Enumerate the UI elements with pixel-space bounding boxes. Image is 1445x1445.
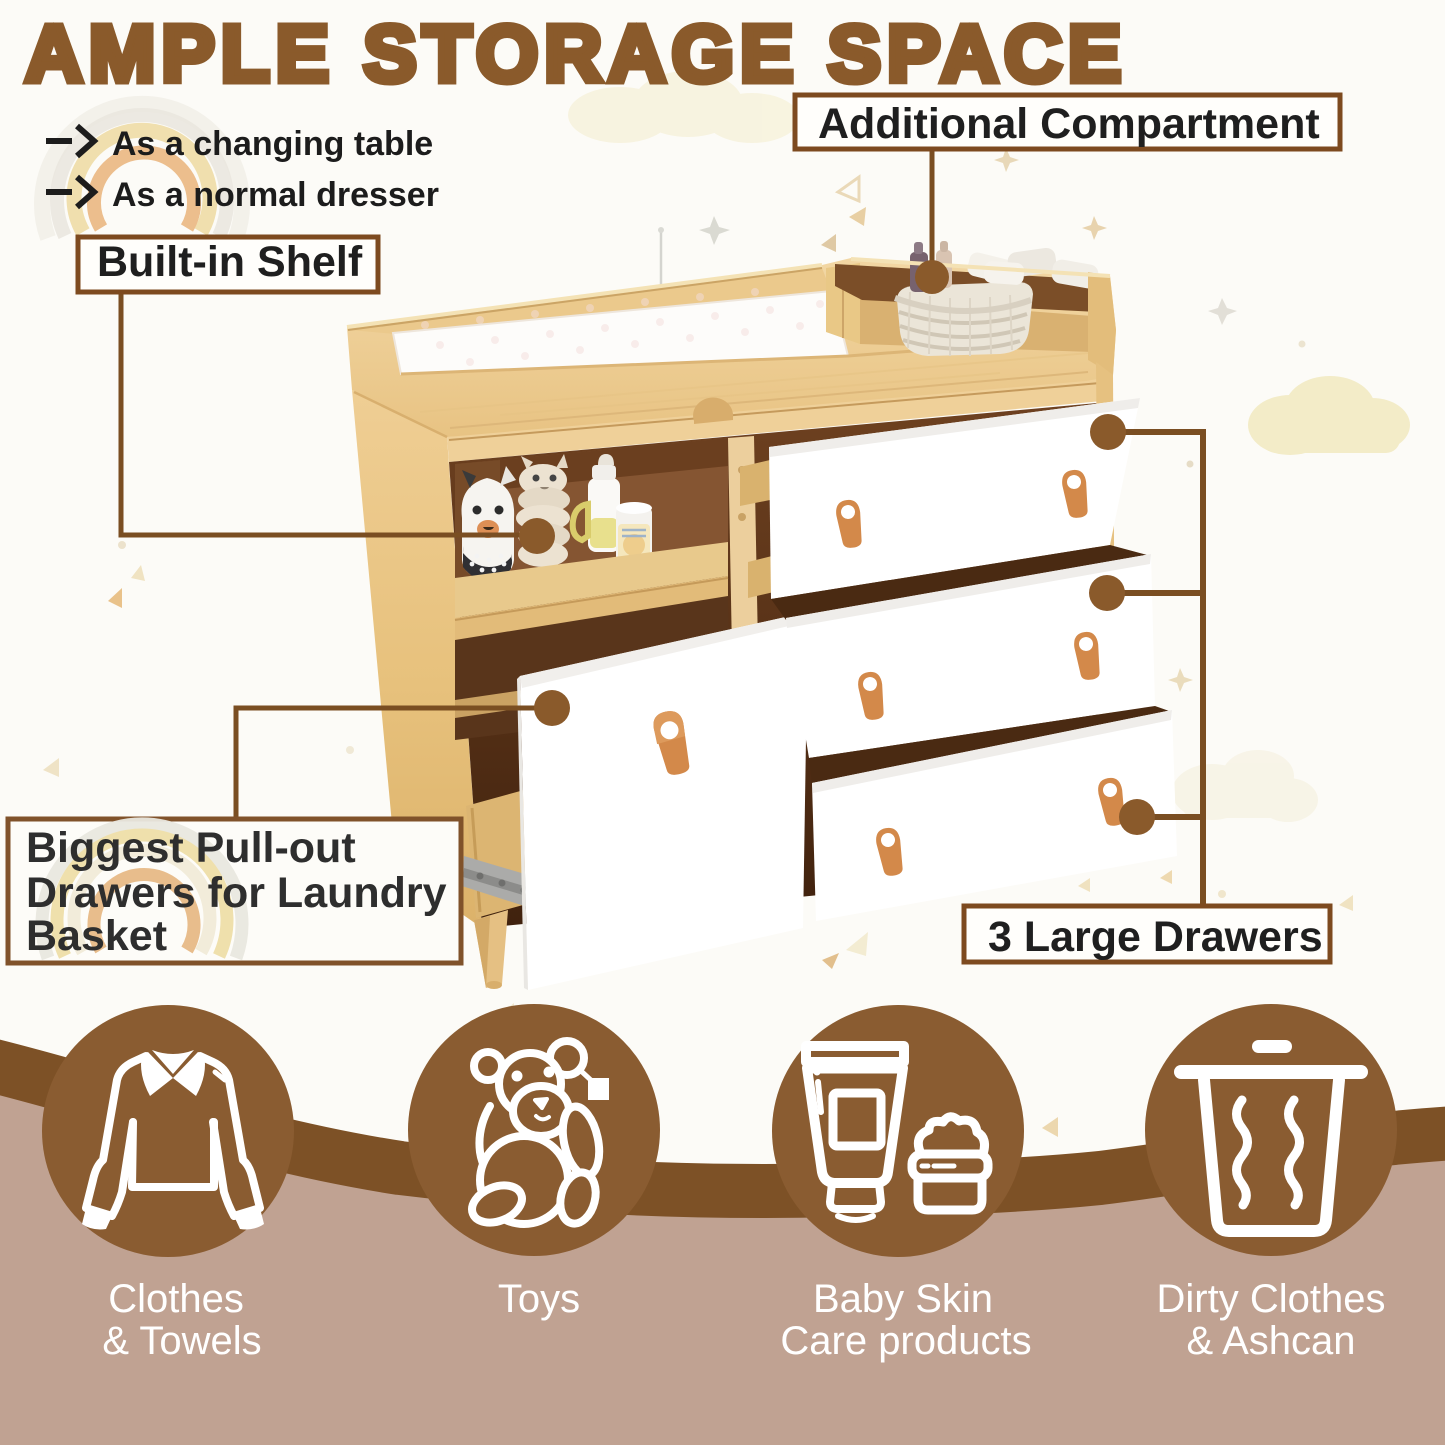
- svg-text:Biggest Pull-out: Biggest Pull-out: [26, 824, 356, 872]
- svg-text:As a changing table: As a changing table: [112, 125, 433, 163]
- svg-text:& Ashcan: & Ashcan: [1186, 1319, 1355, 1363]
- svg-text:Built-in Shelf: Built-in Shelf: [97, 238, 363, 286]
- svg-text:& Towels: & Towels: [102, 1319, 261, 1363]
- svg-text:As a normal dresser: As a normal dresser: [112, 176, 439, 214]
- svg-text:3 Large Drawers: 3 Large Drawers: [988, 913, 1323, 961]
- svg-text:Clothes: Clothes: [108, 1277, 244, 1321]
- svg-text:AMPLE STORAGE SPACE: AMPLE STORAGE SPACE: [25, 9, 1127, 98]
- svg-text:Baby Skin: Baby Skin: [813, 1277, 993, 1321]
- svg-text:Basket: Basket: [26, 912, 167, 960]
- svg-text:Additional Compartment: Additional Compartment: [818, 100, 1320, 148]
- svg-text:Toys: Toys: [498, 1277, 580, 1321]
- svg-text:Care products: Care products: [780, 1319, 1031, 1363]
- svg-text:Dirty Clothes: Dirty Clothes: [1157, 1277, 1386, 1321]
- svg-text:Drawers for Laundry: Drawers for Laundry: [26, 869, 447, 917]
